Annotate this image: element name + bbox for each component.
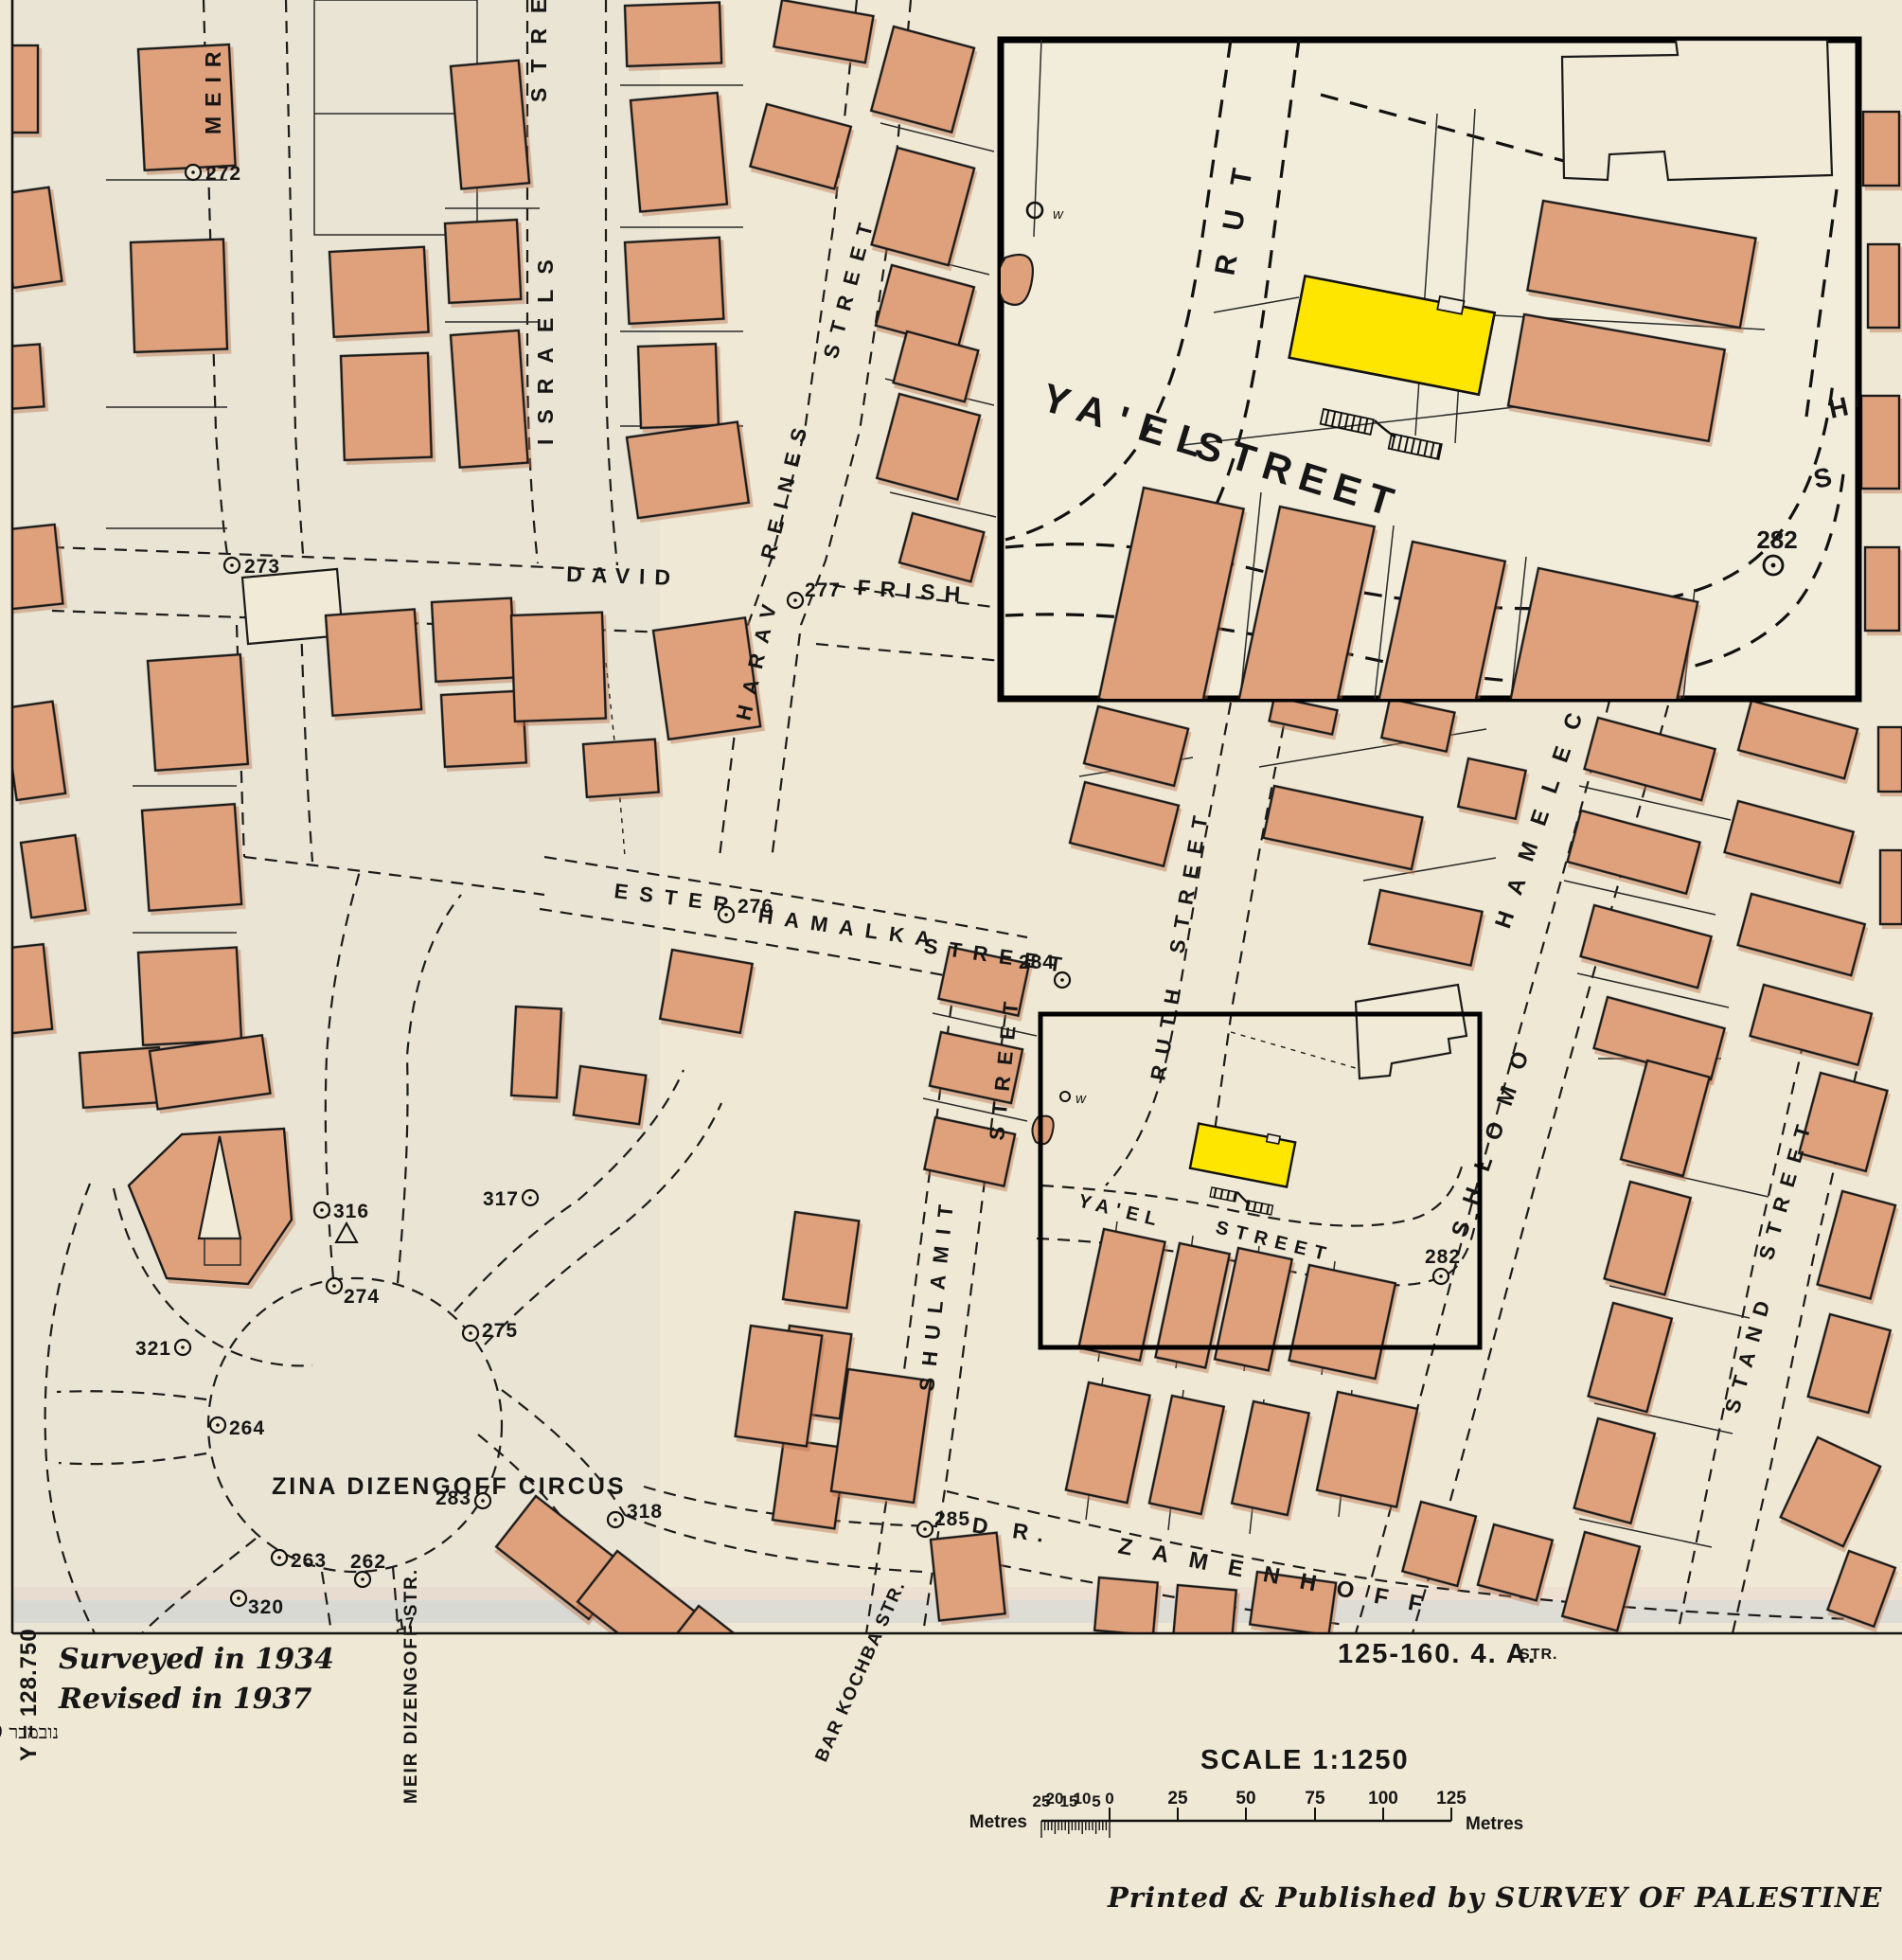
- margin-label-meir-dizengoff: MEIR DIZENGOFF STR.: [401, 1568, 421, 1804]
- imprint: Printed & Published by SURVEY OF PALESTI…: [1107, 1881, 1882, 1914]
- svg-text:277: 277: [805, 579, 841, 601]
- scale-sub-10: 10: [1074, 1790, 1092, 1808]
- svg-text:282: 282: [1425, 1246, 1461, 1268]
- hebrew-date-note: נובמבר 1949: [0, 1720, 59, 1743]
- sheet-reference: 125-160. 4. A.: [1338, 1639, 1538, 1669]
- svg-text:282: 282: [1756, 526, 1797, 554]
- scale-sub-0: 0: [1105, 1790, 1113, 1808]
- svg-text:272: 272: [205, 163, 241, 185]
- svg-text:320: 320: [248, 1596, 284, 1618]
- inset-outlined-building: [1562, 40, 1832, 180]
- svg-text:318: 318: [627, 1501, 663, 1523]
- svg-text:316: 316: [333, 1201, 369, 1222]
- svg-text:276: 276: [738, 896, 773, 918]
- map-canvas: w 17 MEIR ISRAELS STRE HARAV REINES STRE…: [0, 0, 1902, 1960]
- street-label-israels-stre: STRE: [526, 0, 551, 102]
- svg-text:285: 285: [934, 1508, 970, 1530]
- revised-note: Revised in 1937: [58, 1683, 312, 1716]
- svg-text:284: 284: [1019, 952, 1055, 973]
- svg-text:321: 321: [135, 1338, 171, 1360]
- inset-panel: w RUT YA'EL STREET S H 282: [997, 40, 1884, 738]
- surveyed-note: Surveyed in 1934: [59, 1643, 334, 1676]
- scale-main-100: 100: [1368, 1789, 1398, 1809]
- svg-text:283: 283: [436, 1488, 471, 1509]
- scale-main-25: 25: [1167, 1789, 1188, 1809]
- inset-leaf-plot: [997, 255, 1032, 305]
- scale-main-125: 125: [1436, 1789, 1466, 1809]
- scale-main-75: 75: [1305, 1789, 1325, 1809]
- street-label-meir: MEIR: [201, 43, 225, 135]
- scale-bar-left-unit: Metres: [969, 1812, 1027, 1832]
- svg-text:262: 262: [350, 1551, 386, 1573]
- svg-text:263: 263: [291, 1550, 327, 1572]
- scale-bar-right-unit: Metres: [1466, 1814, 1523, 1834]
- svg-text:274: 274: [344, 1286, 380, 1308]
- street-label-david: DAVID: [566, 561, 681, 590]
- street-label-israels: ISRAELS: [533, 244, 558, 445]
- svg-text:264: 264: [229, 1417, 265, 1439]
- svg-text:273: 273: [244, 556, 280, 578]
- leaf-plot-main: [1032, 1116, 1053, 1145]
- scan-tint-band: [12, 0, 660, 1633]
- str-abbrev-label: STR.: [1520, 1647, 1557, 1663]
- svg-text:275: 275: [482, 1320, 518, 1342]
- svg-text:w: w: [1075, 1091, 1087, 1107]
- scale-text: SCALE 1:1250: [1200, 1745, 1410, 1775]
- svg-text:317: 317: [483, 1188, 519, 1210]
- svg-text:w: w: [1053, 206, 1064, 223]
- scale-sub-5: 5: [1092, 1792, 1100, 1810]
- scale-main-50: 50: [1235, 1789, 1255, 1809]
